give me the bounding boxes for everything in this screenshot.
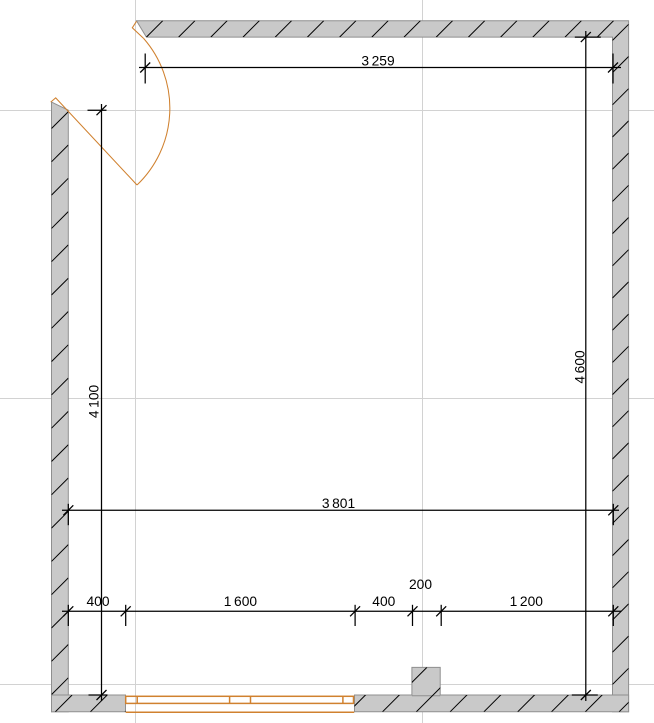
svg-text:1 200: 1 200: [510, 594, 544, 609]
svg-text:3 259: 3 259: [361, 54, 395, 69]
svg-text:4 100: 4 100: [87, 385, 102, 419]
svg-text:3 801: 3 801: [322, 496, 355, 511]
svg-text:1 600: 1 600: [224, 594, 258, 609]
svg-text:4 600: 4 600: [573, 350, 588, 384]
svg-text:200: 200: [409, 577, 432, 592]
svg-text:400: 400: [86, 594, 109, 609]
svg-text:400: 400: [372, 594, 395, 609]
